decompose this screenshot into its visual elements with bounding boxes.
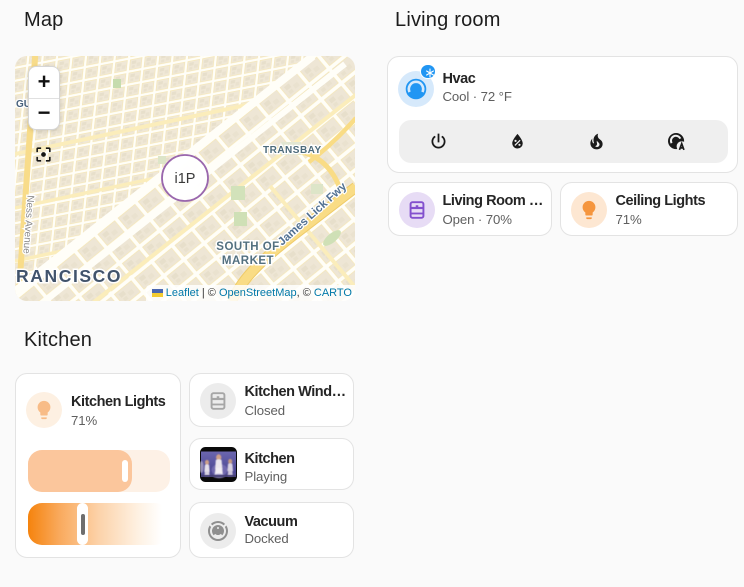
svg-text:TRANSBAY: TRANSBAY xyxy=(263,145,322,156)
svg-text:MARKET: MARKET xyxy=(222,255,274,267)
svg-text:SOUTH OF: SOUTH OF xyxy=(216,241,279,253)
svg-text:RANCISCO: RANCISCO xyxy=(16,266,122,286)
svg-text:i1P: i1P xyxy=(175,171,196,187)
